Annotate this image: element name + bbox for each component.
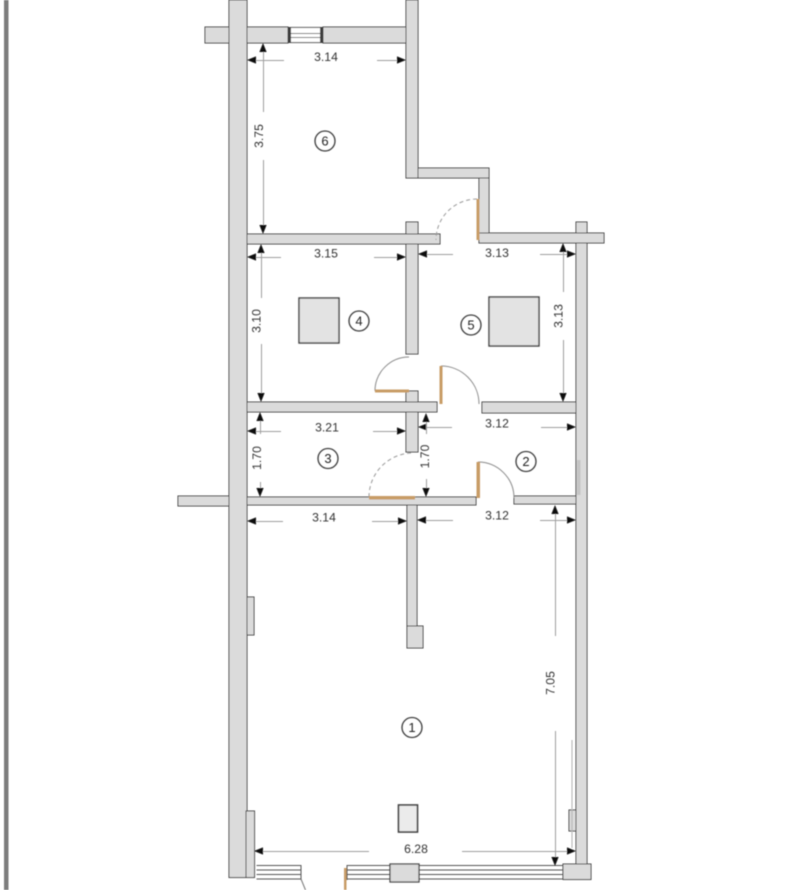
svg-text:4: 4 bbox=[355, 313, 362, 328]
svg-text:6: 6 bbox=[321, 133, 328, 148]
svg-text:1.70: 1.70 bbox=[418, 444, 432, 468]
svg-text:3.14: 3.14 bbox=[312, 511, 336, 525]
svg-text:6.28: 6.28 bbox=[404, 842, 428, 856]
svg-text:3.21: 3.21 bbox=[315, 421, 339, 435]
svg-text:3.14: 3.14 bbox=[314, 50, 338, 64]
svg-text:3.12: 3.12 bbox=[485, 417, 509, 431]
svg-text:1: 1 bbox=[408, 720, 415, 735]
svg-text:3.13: 3.13 bbox=[485, 246, 509, 260]
svg-text:2: 2 bbox=[522, 454, 529, 469]
svg-text:3.13: 3.13 bbox=[552, 304, 566, 328]
svg-text:5: 5 bbox=[467, 317, 474, 332]
svg-text:3.15: 3.15 bbox=[314, 247, 338, 261]
svg-text:3: 3 bbox=[324, 451, 331, 466]
svg-text:3.10: 3.10 bbox=[250, 309, 264, 333]
svg-text:3.12: 3.12 bbox=[485, 509, 509, 523]
svg-text:1.70: 1.70 bbox=[250, 446, 264, 470]
svg-text:3.75: 3.75 bbox=[252, 124, 266, 148]
svg-text:7.05: 7.05 bbox=[544, 671, 558, 695]
